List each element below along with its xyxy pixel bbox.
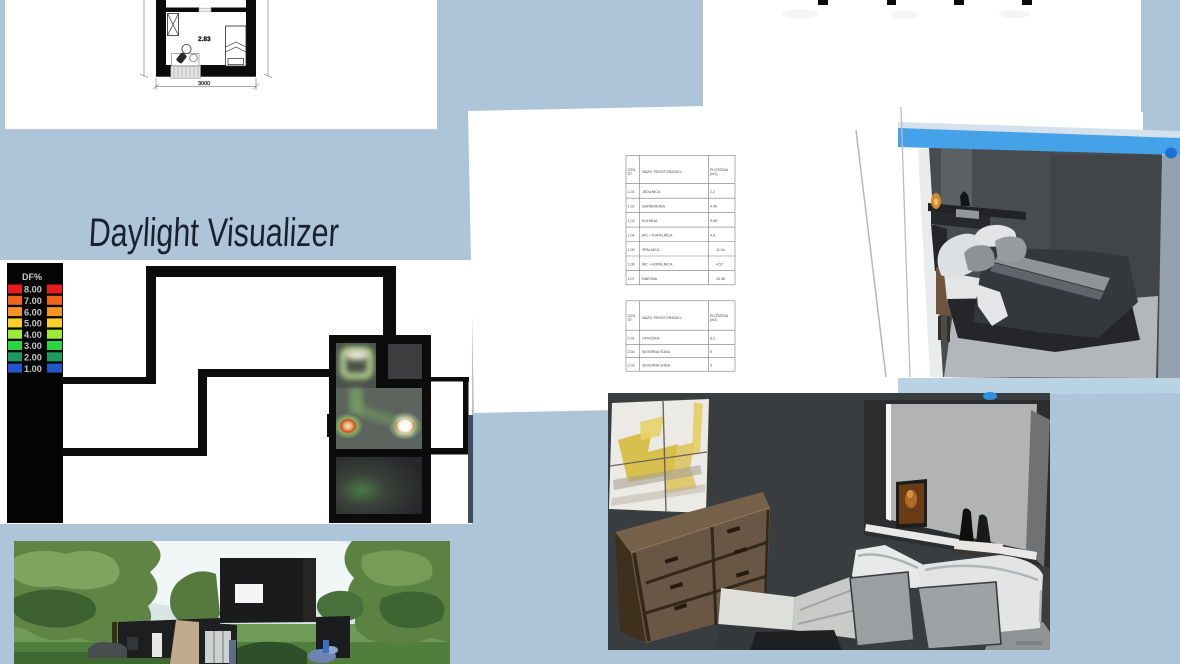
svg-text:2.03: 2.03 <box>628 364 635 368</box>
svg-text:2.83: 2.83 <box>198 36 211 43</box>
svg-text:SEVERNA SOBA: SEVERNA SOBA <box>642 350 671 354</box>
svg-text:(m2): (m2) <box>710 318 717 322</box>
svg-text:1.00: 1.00 <box>24 364 42 374</box>
svg-text:1.01: 1.01 <box>628 190 635 194</box>
svg-text:OTROŠKA: OTROŠKA <box>642 336 660 341</box>
svg-text:DNEVNA: DNEVNA <box>642 277 658 281</box>
svg-text:1.03: 1.03 <box>628 219 635 223</box>
svg-text:4.8: 4.8 <box>710 233 715 237</box>
svg-text:2.2: 2.2 <box>710 190 715 194</box>
svg-text:ŠT.: ŠT. <box>628 317 633 322</box>
svg-text:GARDEROBA: GARDEROBA <box>642 205 666 209</box>
svg-text:KUHINJA: KUHINJA <box>642 219 658 223</box>
svg-text:2.01: 2.01 <box>628 337 635 341</box>
svg-text:7.00: 7.00 <box>24 296 42 306</box>
svg-text:2.00: 2.00 <box>24 353 42 363</box>
svg-text:ŠT.: ŠT. <box>628 171 633 176</box>
svg-text:NAZIV PROSTORA/DEJ.: NAZIV PROSTORA/DEJ. <box>642 316 682 320</box>
svg-text:4.46: 4.46 <box>710 205 717 209</box>
svg-text:8.2: 8.2 <box>710 337 715 341</box>
svg-text:1.06: 1.06 <box>628 262 635 266</box>
svg-text:5.00: 5.00 <box>24 319 42 329</box>
svg-text:SPALNICA: SPALNICA <box>642 248 660 252</box>
svg-text:1.07: 1.07 <box>628 277 635 281</box>
svg-text:11.04: 11.04 <box>716 248 725 252</box>
svg-text:Daylight Visualizer: Daylight Visualizer <box>88 211 340 255</box>
svg-text:DF%: DF% <box>22 272 42 282</box>
svg-text:1.04: 1.04 <box>628 233 635 237</box>
svg-text:2.02: 2.02 <box>628 350 635 354</box>
svg-text:9: 9 <box>710 350 712 354</box>
svg-text:JEDILNICA: JEDILNICA <box>642 190 661 194</box>
svg-text:SEVERNA SOBA: SEVERNA SOBA <box>642 364 671 368</box>
svg-text:WC + KOPALNICA: WC + KOPALNICA <box>642 233 673 237</box>
svg-text:3000: 3000 <box>198 81 210 87</box>
svg-text:WC + KOPALNICA: WC + KOPALNICA <box>642 262 673 266</box>
svg-text:4.57: 4.57 <box>716 262 723 266</box>
svg-text:NAZIV PROSTORA/DEJ.: NAZIV PROSTORA/DEJ. <box>642 170 682 174</box>
svg-text:6.00: 6.00 <box>24 307 42 317</box>
svg-text:8.00: 8.00 <box>24 285 42 295</box>
svg-text:1.02: 1.02 <box>628 205 635 209</box>
svg-text:15.08: 15.08 <box>716 277 725 281</box>
svg-text:9.58: 9.58 <box>710 219 717 223</box>
svg-text:9: 9 <box>710 364 712 368</box>
svg-text:(m2): (m2) <box>710 172 717 176</box>
svg-text:1.05: 1.05 <box>628 248 635 252</box>
svg-text:3.00: 3.00 <box>24 341 42 351</box>
svg-text:4.00: 4.00 <box>24 330 42 340</box>
